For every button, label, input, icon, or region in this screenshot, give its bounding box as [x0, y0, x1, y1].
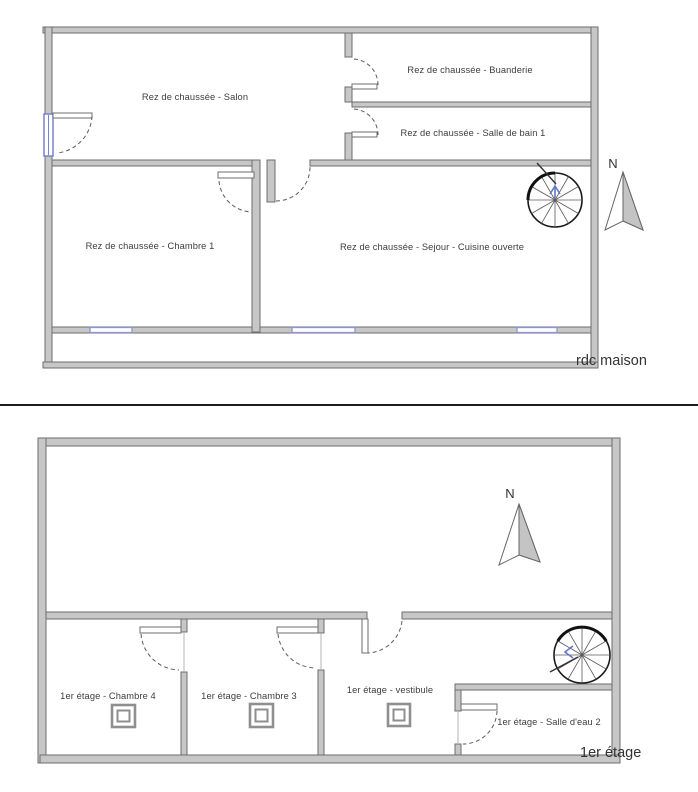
- wall: [46, 612, 367, 619]
- wall: [318, 619, 324, 633]
- wall: [52, 160, 252, 166]
- room-label-salon: Rez de chaussée - Salon: [142, 92, 248, 102]
- wall: [252, 160, 260, 332]
- wall: [612, 438, 620, 763]
- wall: [181, 672, 187, 755]
- plan-title-etage1: 1er étage: [580, 745, 641, 761]
- rdc-plan: [43, 27, 598, 368]
- wall: [345, 33, 352, 57]
- room-label-salle-deau-2: 1er étage - Salle d'eau 2: [497, 717, 601, 727]
- wall: [352, 102, 591, 107]
- plan-title-rdc: rdc maison: [576, 353, 647, 369]
- wall: [345, 87, 352, 102]
- north-letter: N: [608, 156, 617, 171]
- wall: [40, 755, 620, 763]
- wall: [402, 612, 612, 619]
- spiral-staircase-icon: [550, 627, 610, 683]
- rdc-doors: [218, 59, 378, 212]
- floor-plans-page: N: [0, 0, 698, 792]
- room-label-buanderie: Rez de chaussée - Buanderie: [407, 65, 532, 75]
- wall: [318, 670, 324, 755]
- room-label-salle-de-bain-1: Rez de chaussée - Salle de bain 1: [401, 128, 546, 138]
- divider-line: [0, 404, 698, 406]
- room-label-chambre-3: 1er étage - Chambre 3: [201, 691, 297, 701]
- north-arrow-icon: N: [605, 156, 643, 230]
- wall: [45, 155, 52, 368]
- wall: [38, 438, 46, 763]
- wall: [591, 27, 598, 368]
- wall: [43, 362, 598, 368]
- spiral-staircase-icon: [528, 163, 582, 227]
- north-letter: N: [505, 486, 514, 501]
- room-label-chambre-1: Rez de chaussée - Chambre 1: [86, 241, 215, 251]
- window: [90, 328, 132, 333]
- window: [517, 328, 557, 333]
- etage1-columns: [112, 704, 410, 727]
- wall: [310, 160, 591, 166]
- north-arrow-icon: N: [499, 486, 540, 565]
- wall: [181, 619, 187, 632]
- room-label-sejour-cuisine: Rez de chaussée - Sejour - Cuisine ouver…: [340, 242, 524, 252]
- wall: [43, 27, 598, 33]
- wall: [455, 684, 612, 690]
- room-label-chambre-4: 1er étage - Chambre 4: [60, 691, 156, 701]
- wall: [345, 133, 352, 163]
- floor-plan-drawing: N: [0, 0, 698, 792]
- wall: [455, 744, 461, 755]
- wall: [45, 27, 52, 115]
- entry-door: [44, 113, 92, 156]
- room-label-vestibule: 1er étage - vestibule: [347, 685, 433, 695]
- window: [292, 328, 355, 333]
- wall: [455, 690, 461, 711]
- wall: [40, 438, 620, 446]
